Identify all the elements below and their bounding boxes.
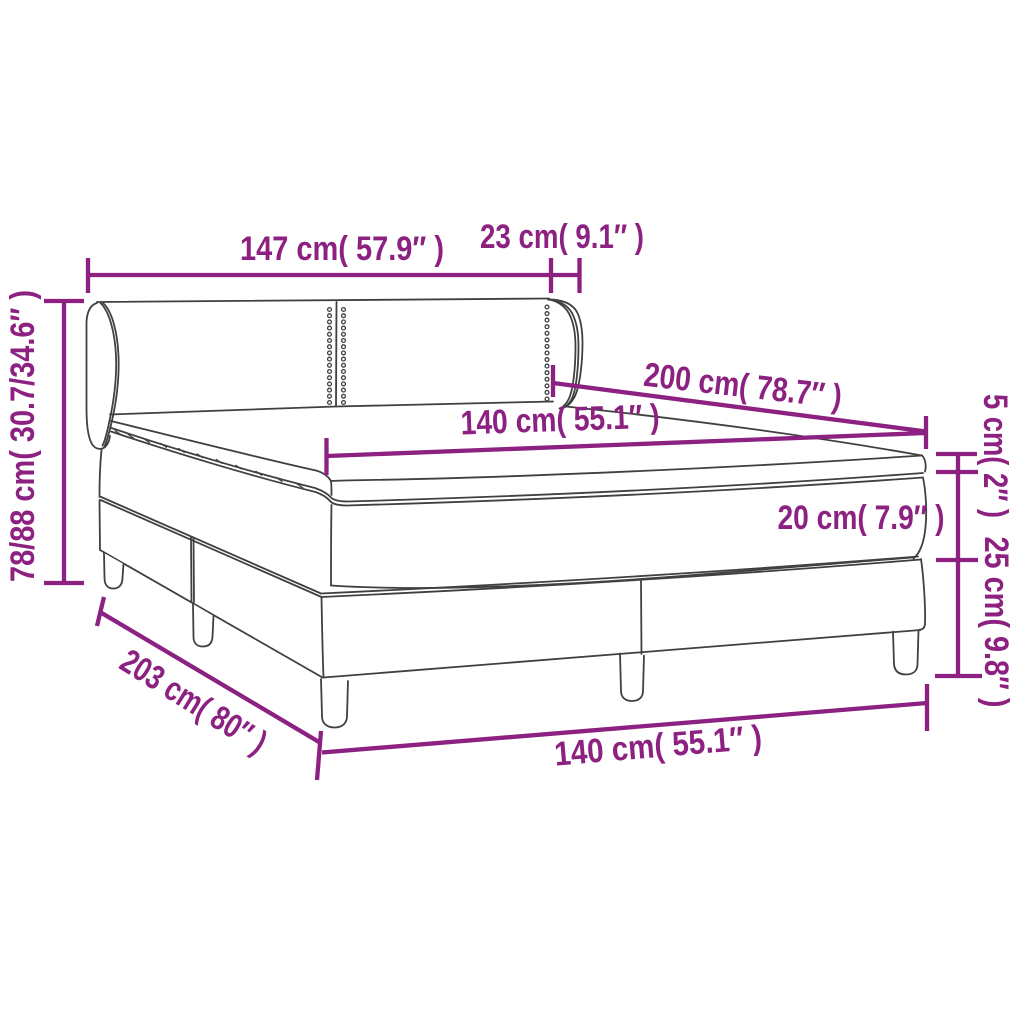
svg-text:78/88 cm( 30.7/34.6″ ): 78/88 cm( 30.7/34.6″ ) [4,290,42,582]
svg-text:20 cm( 7.9″ ): 20 cm( 7.9″ ) [778,499,945,537]
svg-text:5 cm( 2″ ): 5 cm( 2″ ) [976,394,1014,518]
svg-text:25 cm( 9.8″ ): 25 cm( 9.8″ ) [977,537,1015,708]
svg-text:147 cm( 57.9″ ): 147 cm( 57.9″ ) [240,230,444,268]
svg-text:23 cm( 9.1″ ): 23 cm( 9.1″ ) [480,218,644,256]
svg-text:140 cm( 55.1″ ): 140 cm( 55.1″ ) [460,398,660,443]
svg-text:140 cm( 55.1″ ): 140 cm( 55.1″ ) [553,718,763,773]
